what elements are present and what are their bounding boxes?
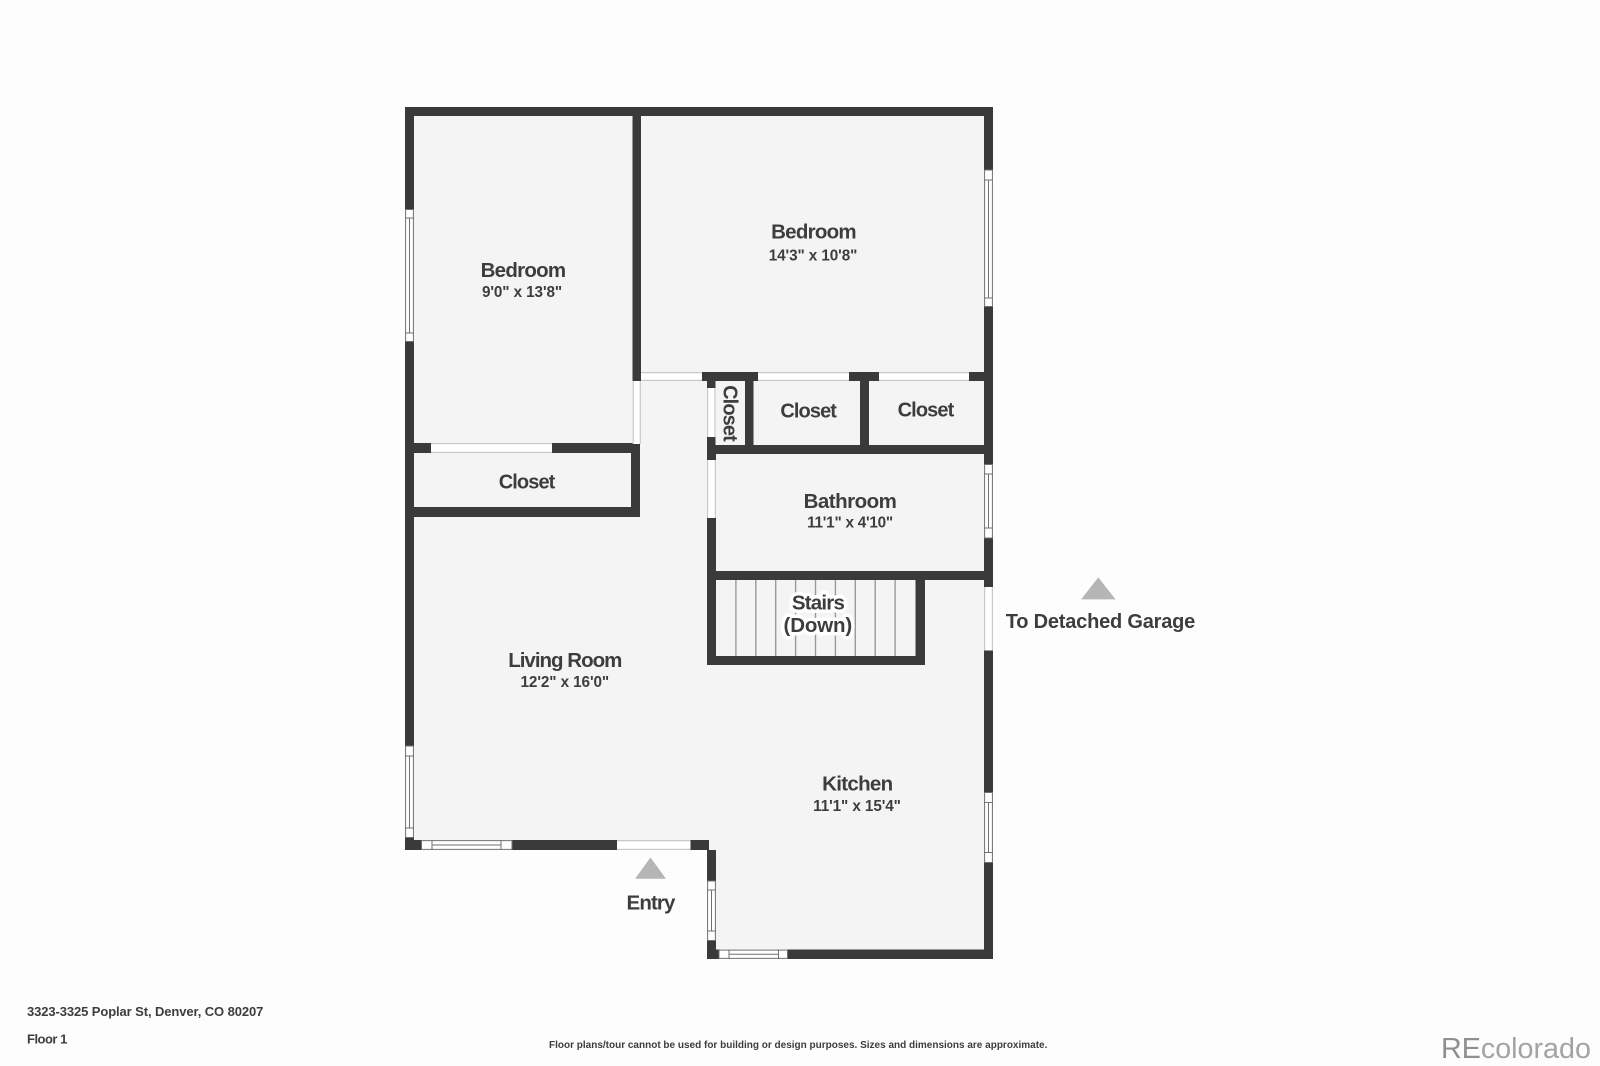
svg-text:(Down): (Down) [784, 614, 853, 637]
svg-text:Closet: Closet [718, 385, 740, 442]
svg-text:Closet: Closet [898, 400, 955, 422]
svg-text:Bedroom: Bedroom [771, 221, 856, 244]
svg-text:3323-3325 Poplar St, Denver, C: 3323-3325 Poplar St, Denver, CO 80207 [27, 1004, 263, 1019]
svg-text:Closet: Closet [780, 401, 837, 423]
svg-text:Living Room: Living Room [508, 649, 621, 672]
svg-text:11'1" x 4'10": 11'1" x 4'10" [807, 515, 893, 532]
svg-text:14'3" x 10'8": 14'3" x 10'8" [769, 248, 858, 265]
svg-text:9'0" x 13'8": 9'0" x 13'8" [482, 284, 562, 301]
svg-text:To Detached Garage: To Detached Garage [1006, 611, 1195, 633]
svg-text:Kitchen: Kitchen [822, 773, 892, 796]
svg-text:Floor 1: Floor 1 [27, 1032, 67, 1047]
svg-text:12'2" x 16'0": 12'2" x 16'0" [521, 674, 610, 691]
svg-text:Floor plans/tour cannot be use: Floor plans/tour cannot be used for buil… [549, 1040, 1048, 1051]
svg-text:11'1" x 15'4": 11'1" x 15'4" [813, 798, 901, 815]
svg-text:Entry: Entry [627, 892, 676, 915]
svg-text:Bedroom: Bedroom [481, 259, 566, 282]
svg-text:Stairs: Stairs [792, 592, 845, 615]
svg-text:Bathroom: Bathroom [804, 490, 897, 513]
svg-text:Closet: Closet [499, 471, 556, 493]
svg-text:REcolorado: REcolorado [1441, 1033, 1591, 1065]
